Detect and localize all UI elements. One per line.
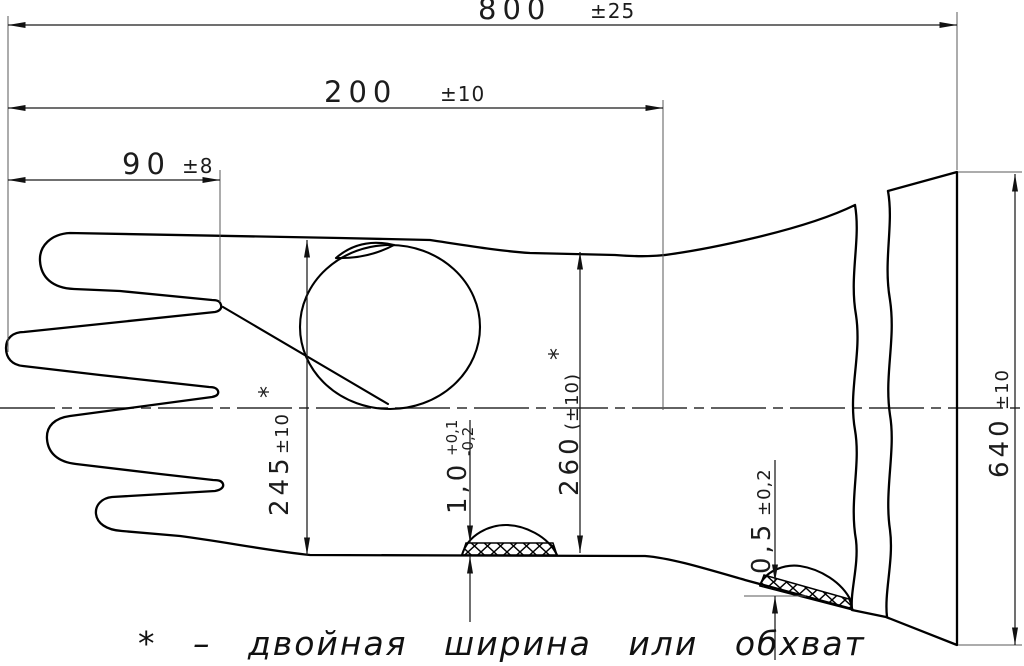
dim-tolerance-640: ±10 — [992, 369, 1013, 410]
thumb-outline — [300, 245, 480, 409]
dim-label-90: 90 — [122, 147, 171, 181]
glove-technical-drawing: 800 ±25 200 ±10 90 ±8 245 ±10 * 260 (±10… — [0, 0, 1024, 666]
dim-label-640: 640 — [985, 416, 1015, 478]
dim-group-260: 260 (±10) * — [544, 348, 585, 496]
footnote-text: * – двойная ширина или обхват — [138, 624, 866, 663]
dim-tolerance-245: ±10 — [272, 413, 293, 454]
dim-label-200: 200 — [324, 75, 397, 109]
dim-label-245: 245 — [265, 454, 295, 516]
drawing-canvas: 800 ±25 200 ±10 90 ±8 245 ±10 * 260 (±10… — [0, 0, 1024, 666]
dim-group-640: 640 ±10 — [985, 369, 1015, 478]
dim-label-thickness-1: 1,0 — [443, 461, 473, 514]
thumb-crotch-line — [223, 307, 388, 404]
dim-tolerance-90: ±8 — [182, 154, 213, 178]
dimension-lines — [8, 25, 1015, 660]
dim-label-800: 800 — [478, 0, 551, 26]
dim-tolerance-200: ±10 — [440, 82, 485, 106]
dim-group-245: 245 ±10 * — [254, 386, 295, 516]
dim-tolerance-260: (±10) — [562, 373, 583, 430]
cuff-roll-wavy-line — [886, 191, 891, 617]
dim-note-mark-260: * — [544, 348, 572, 360]
patch-1-crosshatch-band — [462, 543, 557, 555]
dim-note-mark-245: * — [254, 386, 282, 398]
dim-label-thickness-05: 0,5 — [747, 521, 777, 574]
dim-group-thickness-1: 1,0 +0,1 -0,2 — [443, 420, 477, 514]
dim-label-260: 260 — [555, 434, 585, 496]
dimension-labels-horizontal: 800 ±25 200 ±10 90 ±8 — [122, 0, 635, 181]
dim-group-thickness-05: 0,5 ±0,2 — [747, 468, 777, 574]
dim-tolerance-thickness-05: ±0,2 — [754, 468, 775, 516]
glove-outline — [6, 205, 858, 609]
patch-2-crosshatch-band — [760, 575, 853, 610]
dim-tolerance-minus-thickness-1: -0,2 — [459, 427, 477, 456]
dim-tolerance-800: ±25 — [590, 0, 635, 23]
